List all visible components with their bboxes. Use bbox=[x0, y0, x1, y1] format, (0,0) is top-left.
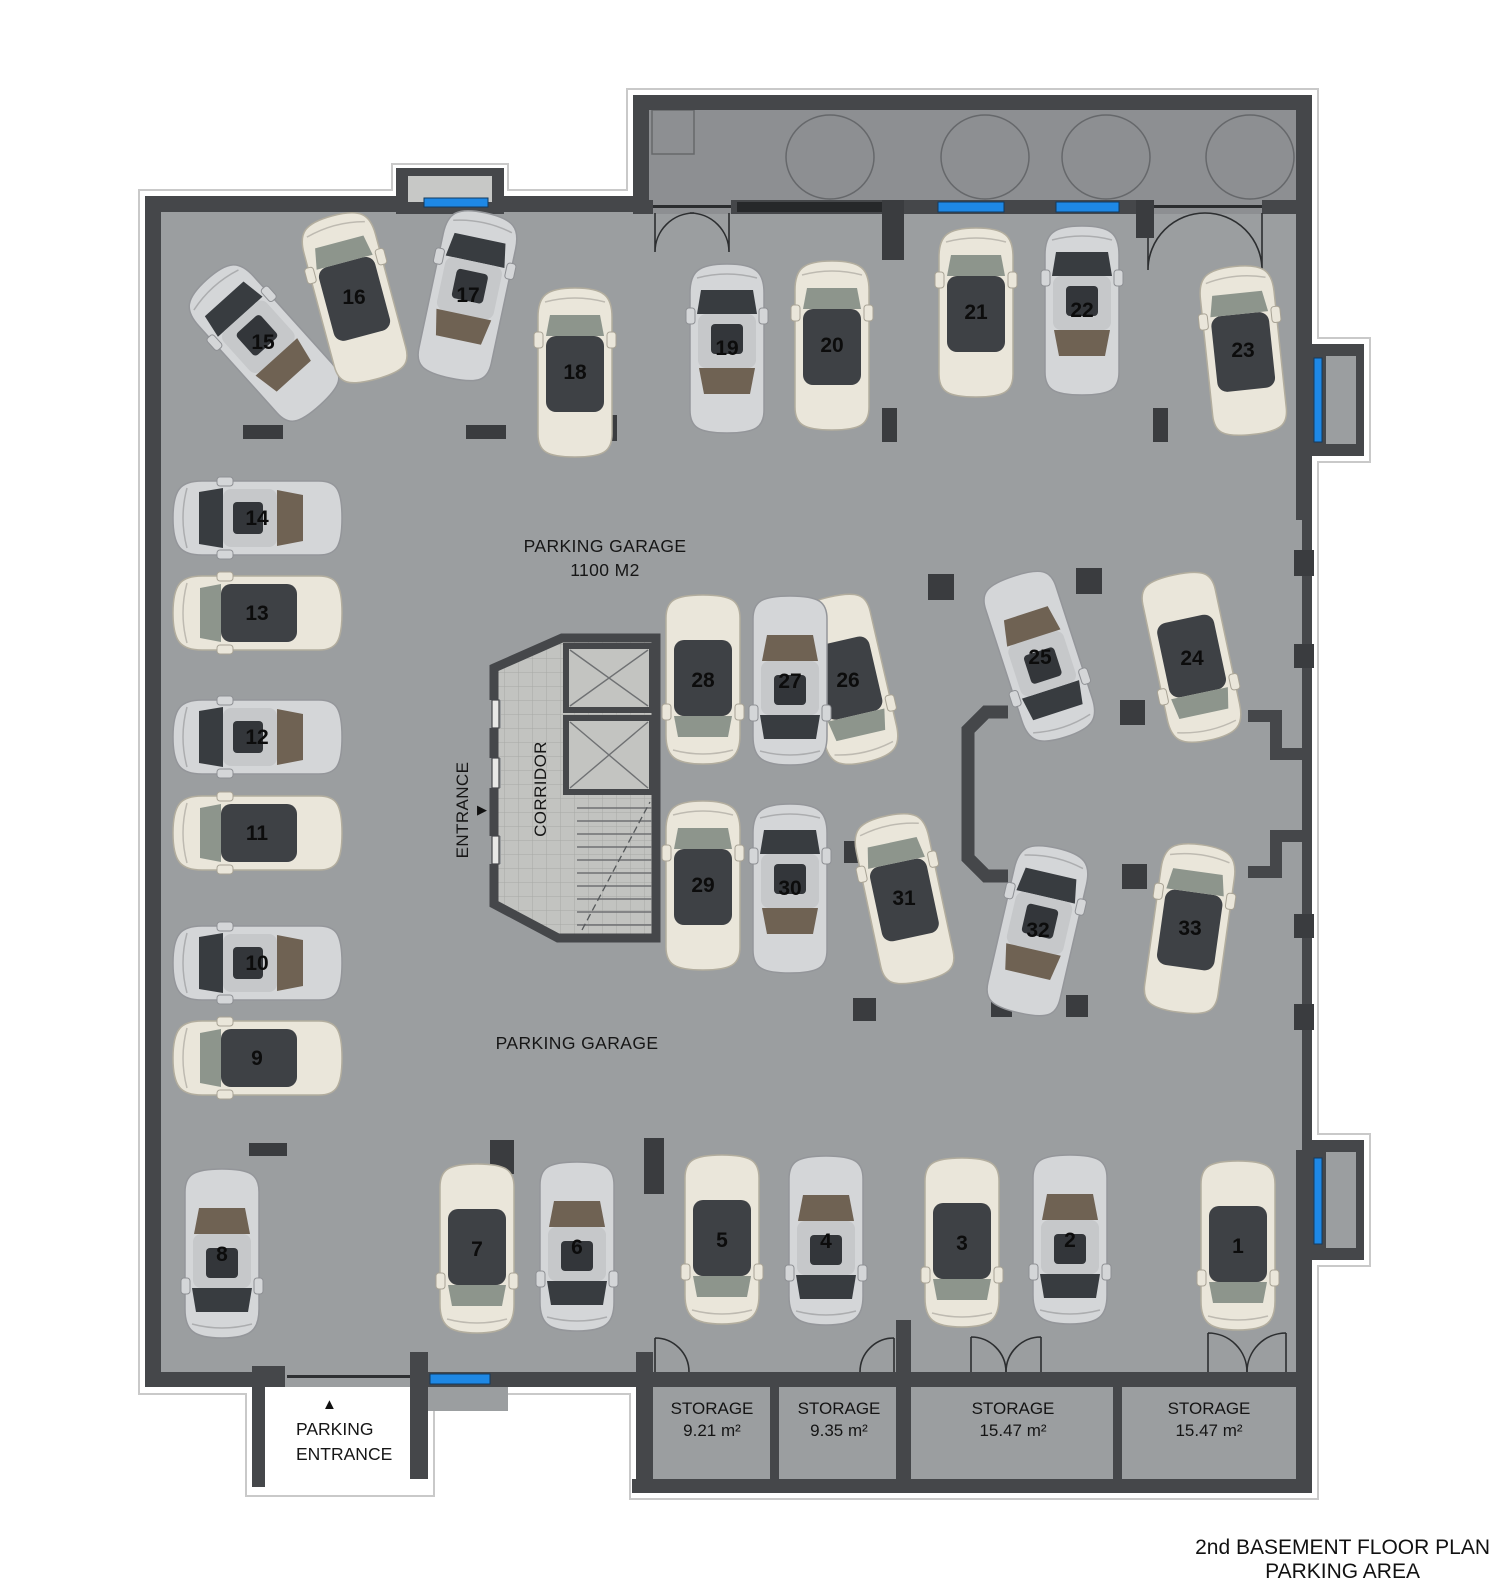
parking-spot-number: 18 bbox=[563, 361, 587, 384]
column bbox=[928, 574, 954, 600]
column bbox=[1066, 995, 1088, 1017]
parking-spot-number: 8 bbox=[216, 1243, 228, 1266]
storage-label-text: STORAGE bbox=[1119, 1398, 1299, 1420]
parking-spot-number: 11 bbox=[246, 822, 269, 845]
parking-spot-number: 12 bbox=[245, 726, 268, 749]
parking-spot-number: 15 bbox=[251, 331, 275, 354]
entrance-arrow-icon: ▶ bbox=[477, 802, 487, 818]
parking-spot-number: 7 bbox=[471, 1238, 483, 1261]
column bbox=[1120, 700, 1145, 725]
parking-spot-11: 11 bbox=[173, 792, 342, 874]
parking-entrance-line1: PARKING bbox=[296, 1417, 392, 1442]
up-arrow-icon: ▲ bbox=[322, 1392, 392, 1417]
parking-spot-number: 28 bbox=[691, 669, 715, 692]
parking-spot-27: 27 bbox=[749, 596, 831, 765]
parking-spot-18: 18 bbox=[534, 288, 616, 457]
parking-spot-4: 4 bbox=[785, 1156, 867, 1325]
parking-spot-number: 20 bbox=[820, 334, 843, 357]
parking-spot-9: 9 bbox=[173, 1017, 342, 1099]
garage-area-label: PARKING GARAGE 1100 M2 bbox=[455, 534, 755, 582]
parking-spot-number: 4 bbox=[820, 1230, 832, 1253]
column bbox=[1294, 1004, 1314, 1030]
corridor-label-wrap: CORRIDOR bbox=[461, 779, 621, 801]
column bbox=[1294, 644, 1314, 668]
column bbox=[1294, 914, 1314, 938]
drawing-title: 2nd BASEMENT FLOOR PLAN PARKING AREA bbox=[1195, 1536, 1490, 1584]
parking-entrance-label: ▲ PARKING ENTRANCE bbox=[296, 1392, 392, 1467]
parking-entrance-line2: ENTRANCE bbox=[296, 1442, 392, 1467]
parking-spot-7: 7 bbox=[436, 1164, 518, 1333]
column bbox=[249, 1143, 287, 1156]
parking-spot-number: 33 bbox=[1178, 917, 1201, 940]
column bbox=[644, 1138, 664, 1194]
storage-area-value: 15.47 m² bbox=[1119, 1420, 1299, 1442]
parking-spot-6: 6 bbox=[536, 1162, 618, 1331]
column bbox=[1294, 550, 1314, 576]
storage-room-label: STORAGE15.47 m² bbox=[923, 1398, 1103, 1442]
garage-area-line2: 1100 M2 bbox=[455, 558, 755, 582]
parking-spot-19: 19 bbox=[686, 264, 768, 433]
garage-area-line1: PARKING GARAGE bbox=[455, 534, 755, 558]
parking-spot-29: 29 bbox=[662, 801, 744, 970]
parking-spot-21: 21 bbox=[935, 228, 1017, 397]
column bbox=[1136, 200, 1154, 238]
storage-room-label: STORAGE15.47 m² bbox=[1119, 1398, 1299, 1442]
parking-spot-number: 32 bbox=[1026, 919, 1049, 942]
parking-spot-8: 8 bbox=[181, 1169, 263, 1338]
parking-spot-number: 16 bbox=[342, 286, 365, 309]
parking-spot-number: 3 bbox=[956, 1232, 968, 1255]
parking-spot-number: 29 bbox=[691, 874, 714, 897]
parking-spot-number: 23 bbox=[1231, 339, 1254, 362]
column bbox=[882, 408, 897, 442]
entrance-label-wrap: ENTRANCE bbox=[383, 800, 543, 822]
parking-spot-number: 22 bbox=[1070, 299, 1093, 322]
parking-spot-20: 20 bbox=[791, 261, 873, 430]
parking-spot-number: 24 bbox=[1180, 647, 1204, 670]
parking-spot-number: 26 bbox=[836, 669, 859, 692]
column bbox=[882, 200, 904, 260]
parking-spot-number: 9 bbox=[251, 1047, 263, 1070]
parking-spot-5: 5 bbox=[681, 1155, 763, 1324]
column bbox=[1122, 864, 1147, 889]
parking-spot-30: 30 bbox=[749, 804, 831, 973]
parking-spot-28: 28 bbox=[662, 595, 744, 764]
parking-spot-number: 19 bbox=[715, 337, 738, 360]
column bbox=[853, 998, 876, 1021]
parking-spot-number: 1 bbox=[1232, 1235, 1244, 1258]
parking-spot-2: 2 bbox=[1029, 1155, 1111, 1324]
garage-lower-label: PARKING GARAGE bbox=[427, 1031, 727, 1055]
parking-spot-12: 12 bbox=[173, 696, 342, 778]
floor-plan-drawing: 1 2 3 4 bbox=[0, 0, 1500, 1586]
storage-area-value: 15.47 m² bbox=[923, 1420, 1103, 1442]
parking-spot-1: 1 bbox=[1197, 1161, 1279, 1330]
parking-spot-number: 13 bbox=[245, 602, 268, 625]
column bbox=[466, 425, 506, 439]
column bbox=[243, 425, 283, 439]
entrance-label: ENTRANCE bbox=[453, 730, 473, 890]
parking-spot-10: 10 bbox=[173, 922, 342, 1004]
parking-spot-number: 21 bbox=[964, 301, 988, 324]
corridor-label: CORRIDOR bbox=[531, 709, 551, 869]
storage-area-value: 9.35 m² bbox=[749, 1420, 929, 1442]
parking-spot-13: 13 bbox=[173, 572, 342, 654]
parking-spot-22: 22 bbox=[1041, 226, 1123, 395]
floor-plan-page: 1 2 3 4 bbox=[0, 0, 1500, 1586]
parking-spot-number: 30 bbox=[778, 877, 801, 900]
storage-room-label: STORAGE9.35 m² bbox=[749, 1398, 929, 1442]
parking-spot-3: 3 bbox=[921, 1158, 1003, 1327]
drawing-title-line1: 2nd BASEMENT FLOOR PLAN bbox=[1195, 1536, 1490, 1560]
column bbox=[1153, 408, 1168, 442]
parking-spot-number: 6 bbox=[571, 1236, 583, 1259]
parking-spot-number: 2 bbox=[1064, 1229, 1076, 1252]
parking-spot-14: 14 bbox=[173, 477, 342, 559]
storage-label-text: STORAGE bbox=[749, 1398, 929, 1420]
parking-spot-number: 5 bbox=[716, 1229, 728, 1252]
parking-spot-number: 17 bbox=[456, 284, 479, 307]
storage-label-text: STORAGE bbox=[923, 1398, 1103, 1420]
drawing-title-line2: PARKING AREA bbox=[1195, 1560, 1490, 1584]
parking-spot-number: 10 bbox=[245, 952, 268, 975]
column bbox=[1076, 568, 1102, 594]
parking-spot-number: 25 bbox=[1028, 646, 1052, 669]
parking-spot-number: 14 bbox=[245, 507, 269, 530]
parking-spot-number: 27 bbox=[778, 670, 801, 693]
parking-spot-number: 31 bbox=[892, 887, 916, 910]
